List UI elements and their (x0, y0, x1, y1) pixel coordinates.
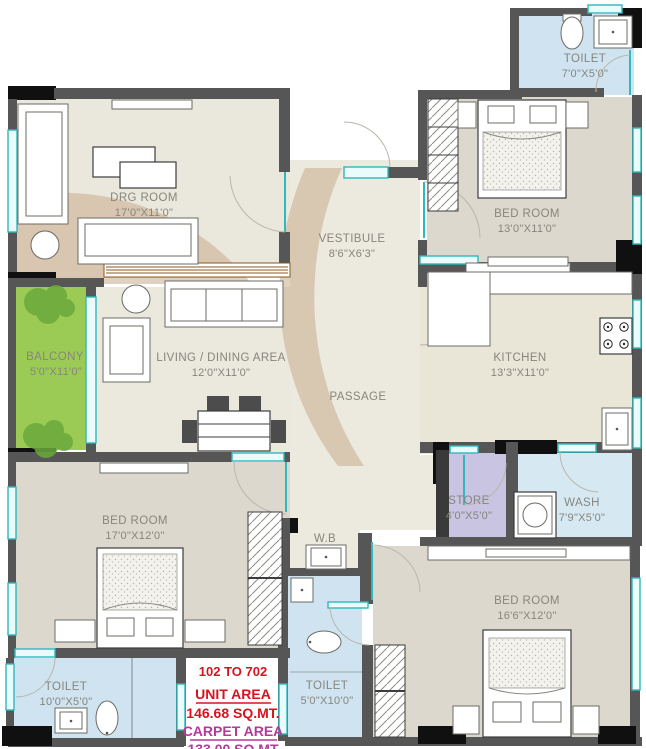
sofa-icon (18, 104, 68, 224)
toilet-top-label: TOILET (564, 53, 606, 65)
washing-machine-icon (514, 492, 556, 538)
nightstand-icon (566, 102, 588, 128)
bed-top-dims: 13'0"X11'0" (498, 223, 557, 235)
sink-icon (602, 408, 632, 450)
toilet-top-dims: 7'0"X5'0" (562, 68, 609, 80)
washbasin-icon (306, 545, 346, 569)
unit-area-label: UNIT AREA (195, 686, 271, 702)
nightstand-icon (458, 102, 476, 128)
carpet-area-value: 133.00 SQ.MT (187, 741, 278, 749)
wardrobe-icon (248, 512, 282, 645)
toilet-top-fixtures (561, 14, 632, 49)
drg-room-dims: 17'0"X11'0" (115, 207, 174, 219)
wood-strip-divider (104, 263, 290, 277)
armchair-icon (103, 318, 150, 382)
unit-range: 102 TO 702 (199, 664, 267, 679)
washbasin-icon (291, 578, 313, 602)
kitchen-counter-left (428, 272, 490, 346)
wash-label: WASH (564, 497, 600, 509)
drg-room-label: DRG ROOM (110, 192, 178, 204)
store-dims: 4'0"X5'0" (446, 510, 493, 522)
window-bed-top-1 (633, 128, 641, 172)
window-toilet-left (6, 664, 14, 710)
vestibule-dims: 8'6"X6'3" (329, 248, 376, 260)
window-drg-left (8, 130, 17, 232)
wc-icon (307, 631, 341, 653)
wb-label: W.B (314, 533, 336, 545)
unit-info-block: 102 TO 702 UNIT AREA 146.68 SQ.MT. CARPE… (183, 664, 284, 749)
bed-right-dims: 16'6"X12'0" (497, 610, 556, 622)
carpet-area-label: CARPET AREA (183, 723, 284, 739)
living-label: LIVING / DINING AREA (156, 352, 285, 364)
nightstand-icon (453, 706, 479, 734)
washbasin-icon (55, 708, 87, 733)
bed-icon (478, 100, 566, 198)
toilet-left-label: TOILET (45, 681, 87, 693)
washbasin-icon (594, 16, 632, 48)
door-bed-left (232, 453, 284, 461)
bed-left-label: BED ROOM (102, 515, 168, 527)
floor-plan-drawing: DRG ROOM 17'0"X11'0" TOILET 7'0"X5'0" BE… (0, 0, 646, 749)
wardrobe-icon (428, 99, 458, 211)
sofa-icon (78, 218, 198, 264)
living-dims: 12'0"X11'0" (192, 367, 251, 379)
console-icon (112, 100, 192, 109)
bed-right-label: BED ROOM (494, 595, 560, 607)
window-bed-left-2 (8, 583, 16, 635)
console-icon (100, 463, 188, 473)
toilet-left-dims: 10'0"X5'0" (40, 696, 93, 708)
wash-dims: 7'9"X5'0" (559, 512, 606, 524)
bed-icon (483, 630, 571, 737)
balcony-dims: 5'0"X11'0" (30, 366, 82, 378)
store-label: STORE (448, 495, 489, 507)
window-bed-right (632, 578, 640, 690)
window-kitchen-1 (633, 300, 641, 348)
wc-icon (561, 14, 583, 49)
toilet-mid-label: TOILET (306, 680, 348, 692)
nightstand-icon (55, 620, 95, 642)
unit-area-value: 146.68 SQ.MT. (186, 705, 279, 721)
bed-top-label: BED ROOM (494, 208, 560, 220)
door-wash (558, 444, 596, 452)
window-toilet-top (588, 5, 622, 13)
main-entrance-door (344, 167, 388, 178)
shelf-icon (486, 549, 566, 557)
side-table-icon (31, 231, 59, 259)
balcony-label: BALCONY (26, 351, 84, 363)
vestibule-label: VESTIBULE (319, 233, 386, 245)
kitchen-label: KITCHEN (493, 352, 546, 364)
floor-plan: DRG ROOM 17'0"X11'0" TOILET 7'0"X5'0" BE… (0, 0, 646, 749)
stove-icon (600, 318, 632, 354)
bed-left-dims: 17'0"X12'0" (105, 530, 164, 542)
door-toilet-left (15, 649, 55, 657)
sofa-icon (165, 281, 283, 327)
door-toilet-mid (328, 602, 368, 608)
passage-label: PASSAGE (330, 391, 387, 403)
door-store (450, 446, 478, 453)
passage-lower-floor (290, 455, 436, 530)
window-kitchen-2 (633, 398, 641, 448)
nightstand-icon (573, 706, 599, 734)
wardrobe-icon (375, 645, 405, 737)
window-balcony-living (86, 297, 96, 443)
kitchen-dims: 13'3"X11'0" (491, 367, 550, 379)
window-bed-top-2 (633, 196, 641, 244)
window-bed-left-1 (8, 487, 16, 539)
toilet-mid-dims: 5'0"X10'0" (301, 695, 354, 707)
wc-icon (96, 701, 118, 735)
shelf-icon (488, 257, 568, 266)
nightstand-icon (185, 620, 225, 642)
round-table-icon (122, 285, 150, 313)
bed-icon (97, 548, 183, 648)
